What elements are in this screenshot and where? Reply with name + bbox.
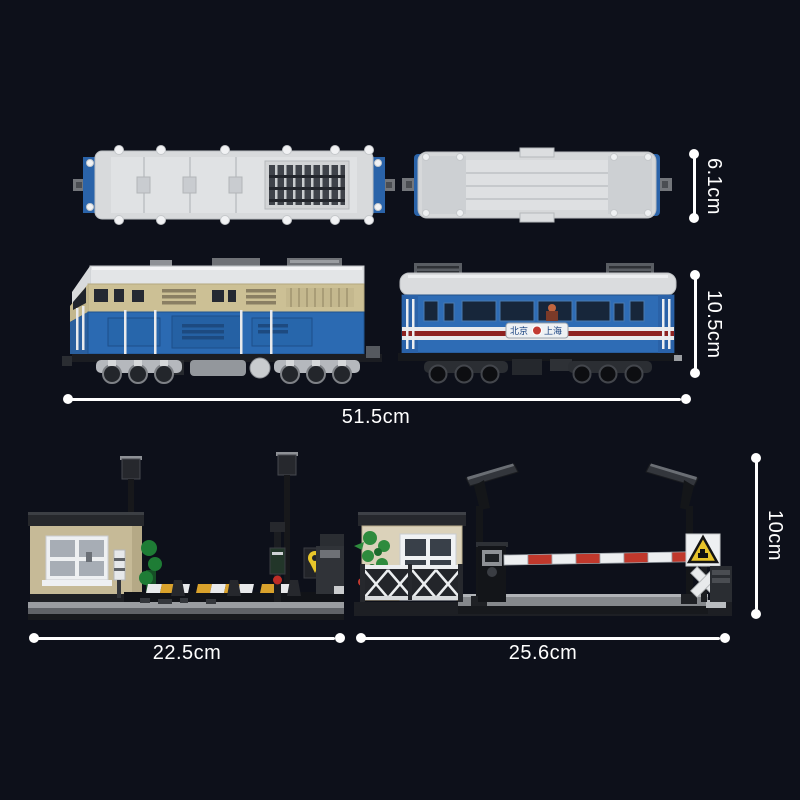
lattice-fence: [360, 564, 463, 602]
barrier-arm: [504, 552, 696, 565]
relay-box-right: [710, 566, 732, 602]
dim-endpoint: [720, 633, 730, 643]
dim-label-scene-height: 10cm: [763, 455, 786, 615]
destination-sign: 北京 上海: [506, 323, 568, 338]
destination-sign-left: 北京: [510, 325, 528, 337]
dim-endpoint: [751, 609, 761, 619]
guard-hut: [28, 512, 144, 602]
dim-endpoint: [689, 213, 699, 223]
relay-box: [316, 534, 344, 594]
destination-sign-right: 上海: [544, 325, 562, 337]
dim-label-left-scene: 22.5cm: [107, 642, 267, 665]
dim-line: [755, 458, 758, 610]
dim-endpoint: [690, 368, 700, 378]
left-crossing-scene: [28, 452, 344, 620]
dim-line: [693, 154, 696, 218]
coach-side-view: 北京 上海: [394, 263, 682, 385]
dim-label-roof-width: 6.1cm: [702, 147, 725, 225]
dim-label-train-length: 51.5cm: [286, 406, 466, 429]
blue-body: [70, 312, 364, 354]
coach-roof-top-view: [402, 146, 672, 224]
right-crossing-scene: [354, 450, 732, 622]
barrier-mechanism: [476, 542, 508, 602]
dim-line: [68, 398, 681, 401]
dim-endpoint: [681, 394, 691, 404]
roof-body: [418, 148, 656, 222]
locomotive-side-view: [62, 258, 392, 384]
roof-vent-grille: [265, 161, 349, 209]
product-dimensions-photo: 6.1cm: [0, 0, 800, 800]
dim-line: [361, 637, 720, 640]
dim-label-train-height: 10.5cm: [702, 270, 725, 378]
dim-line: [34, 637, 335, 640]
roof: [400, 273, 676, 295]
locomotive-roof-top-view: [73, 145, 395, 225]
dim-endpoint: [335, 633, 345, 643]
striped-curbs: [146, 584, 290, 593]
dim-line: [694, 275, 697, 373]
dim-label-right-scene: 25.6cm: [463, 642, 623, 665]
